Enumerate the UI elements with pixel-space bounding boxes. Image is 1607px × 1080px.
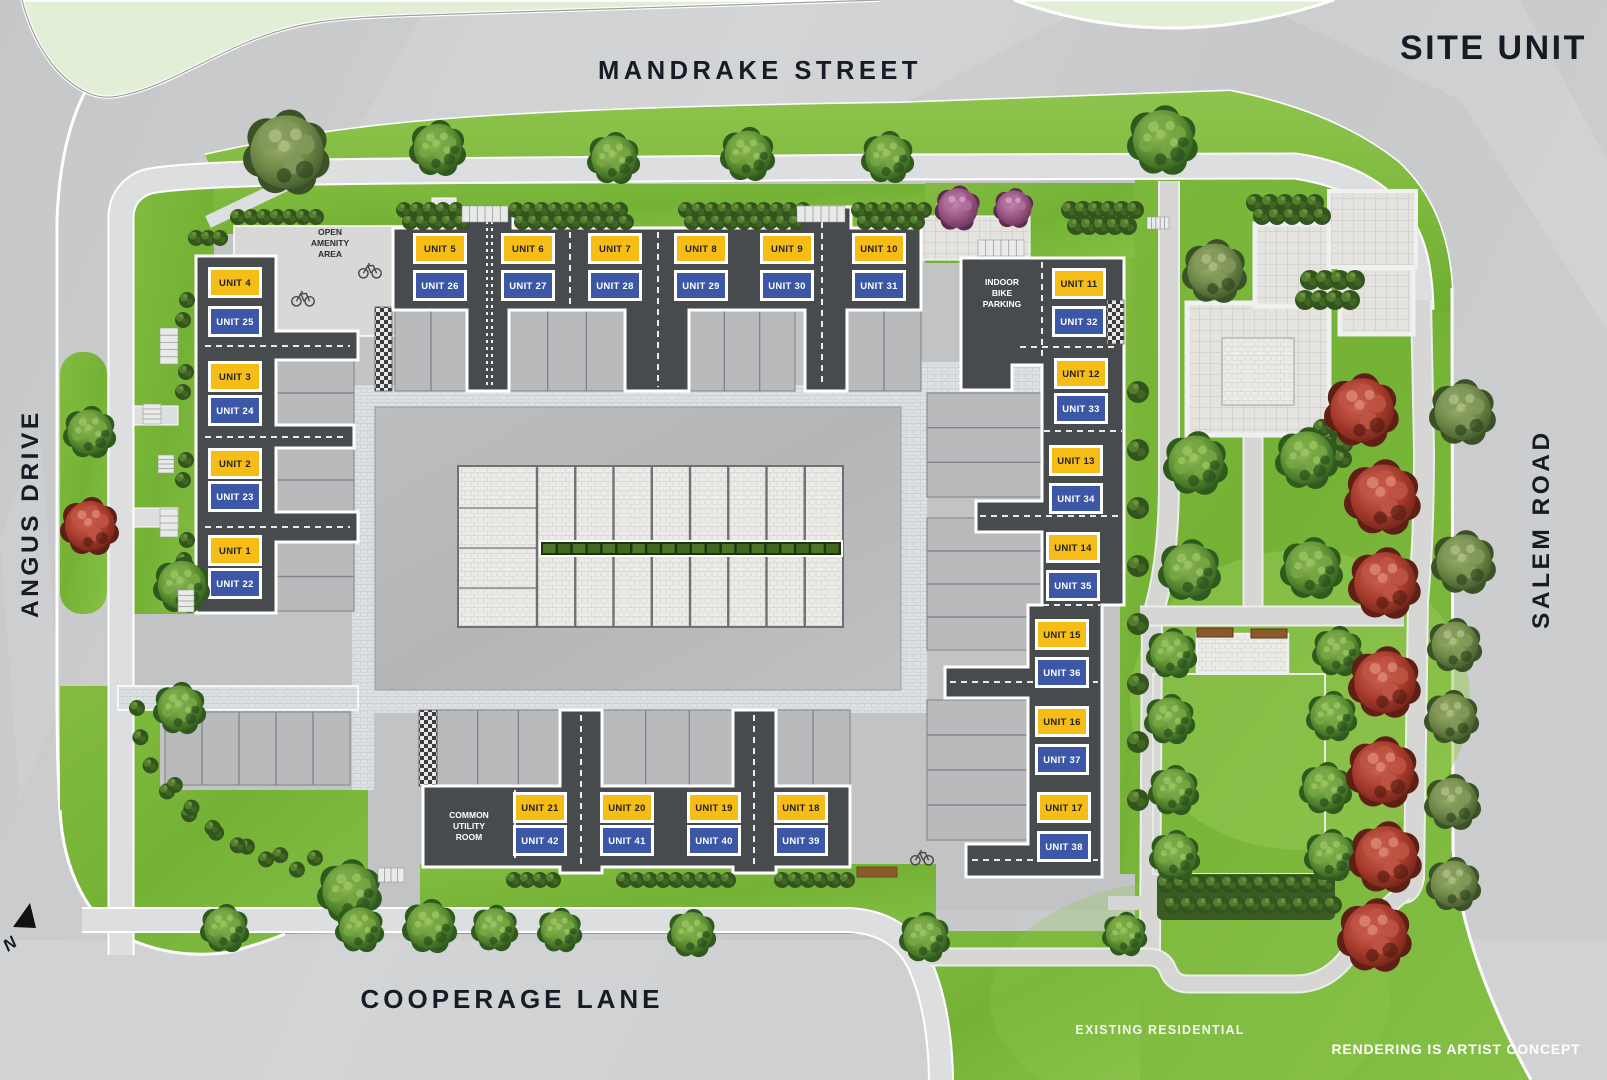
svg-text:UNIT 28: UNIT 28 bbox=[596, 281, 633, 292]
svg-text:UNIT 9: UNIT 9 bbox=[771, 244, 803, 255]
svg-text:RENDERING IS ARTIST CONCEPT: RENDERING IS ARTIST CONCEPT bbox=[1332, 1041, 1581, 1057]
svg-text:AREA: AREA bbox=[318, 249, 342, 259]
svg-text:UTILITY: UTILITY bbox=[453, 821, 485, 831]
svg-text:UNIT 3: UNIT 3 bbox=[219, 372, 251, 383]
svg-text:UNIT 18: UNIT 18 bbox=[782, 803, 819, 814]
svg-text:UNIT 10: UNIT 10 bbox=[860, 244, 897, 255]
svg-text:UNIT 39: UNIT 39 bbox=[782, 836, 819, 847]
svg-text:MANDRAKE STREET: MANDRAKE STREET bbox=[598, 57, 922, 85]
svg-text:UNIT 35: UNIT 35 bbox=[1054, 581, 1092, 592]
svg-text:UNIT 7: UNIT 7 bbox=[599, 244, 631, 255]
svg-text:UNIT 40: UNIT 40 bbox=[695, 836, 732, 847]
svg-text:UNIT 41: UNIT 41 bbox=[608, 836, 646, 847]
svg-text:UNIT 1: UNIT 1 bbox=[219, 546, 251, 557]
svg-text:UNIT 36: UNIT 36 bbox=[1043, 668, 1080, 679]
svg-text:UNIT 16: UNIT 16 bbox=[1043, 717, 1080, 728]
svg-text:UNIT 38: UNIT 38 bbox=[1045, 842, 1082, 853]
svg-text:COOPERAGE LANE: COOPERAGE LANE bbox=[360, 984, 663, 1014]
svg-text:COMMON: COMMON bbox=[449, 810, 489, 820]
svg-text:BIKE: BIKE bbox=[992, 288, 1013, 298]
svg-text:UNIT 20: UNIT 20 bbox=[608, 803, 645, 814]
svg-text:SALEM ROAD: SALEM ROAD bbox=[1528, 429, 1555, 629]
svg-text:UNIT 37: UNIT 37 bbox=[1043, 755, 1080, 766]
svg-text:OPEN: OPEN bbox=[318, 227, 342, 237]
svg-text:UNIT 21: UNIT 21 bbox=[521, 803, 559, 814]
svg-text:EXISTING RESIDENTIAL: EXISTING RESIDENTIAL bbox=[1075, 1023, 1244, 1037]
svg-text:UNIT 24: UNIT 24 bbox=[216, 406, 254, 417]
svg-text:UNIT 8: UNIT 8 bbox=[685, 244, 717, 255]
svg-text:UNIT 30: UNIT 30 bbox=[768, 281, 805, 292]
svg-text:PARKING: PARKING bbox=[983, 299, 1022, 309]
svg-text:UNIT 4: UNIT 4 bbox=[219, 278, 251, 289]
svg-text:ROOM: ROOM bbox=[456, 832, 482, 842]
svg-text:UNIT 25: UNIT 25 bbox=[216, 317, 254, 328]
svg-text:UNIT 12: UNIT 12 bbox=[1062, 369, 1099, 380]
svg-text:UNIT 22: UNIT 22 bbox=[216, 579, 253, 590]
svg-text:INDOOR: INDOOR bbox=[985, 277, 1019, 287]
svg-text:UNIT 27: UNIT 27 bbox=[509, 281, 546, 292]
svg-text:UNIT 32: UNIT 32 bbox=[1060, 317, 1097, 328]
svg-text:ANGUS DRIVE: ANGUS DRIVE bbox=[17, 409, 44, 618]
svg-text:SITE UNIT: SITE UNIT bbox=[1400, 29, 1587, 67]
svg-text:UNIT 14: UNIT 14 bbox=[1054, 543, 1092, 554]
svg-text:UNIT 5: UNIT 5 bbox=[424, 244, 456, 255]
svg-text:UNIT 6: UNIT 6 bbox=[512, 244, 544, 255]
svg-text:UNIT 2: UNIT 2 bbox=[219, 459, 251, 470]
svg-text:UNIT 15: UNIT 15 bbox=[1043, 630, 1081, 641]
svg-text:AMENITY: AMENITY bbox=[311, 238, 350, 248]
svg-text:UNIT 23: UNIT 23 bbox=[216, 492, 253, 503]
svg-text:UNIT 17: UNIT 17 bbox=[1045, 803, 1082, 814]
svg-text:UNIT 42: UNIT 42 bbox=[521, 836, 558, 847]
svg-text:UNIT 33: UNIT 33 bbox=[1062, 404, 1099, 415]
svg-text:UNIT 11: UNIT 11 bbox=[1061, 279, 1098, 290]
svg-text:UNIT 34: UNIT 34 bbox=[1057, 494, 1095, 505]
svg-text:UNIT 26: UNIT 26 bbox=[421, 281, 458, 292]
svg-text:UNIT 19: UNIT 19 bbox=[695, 803, 732, 814]
svg-text:UNIT 13: UNIT 13 bbox=[1057, 456, 1094, 467]
svg-text:UNIT 31: UNIT 31 bbox=[860, 281, 898, 292]
svg-text:UNIT 29: UNIT 29 bbox=[682, 281, 719, 292]
